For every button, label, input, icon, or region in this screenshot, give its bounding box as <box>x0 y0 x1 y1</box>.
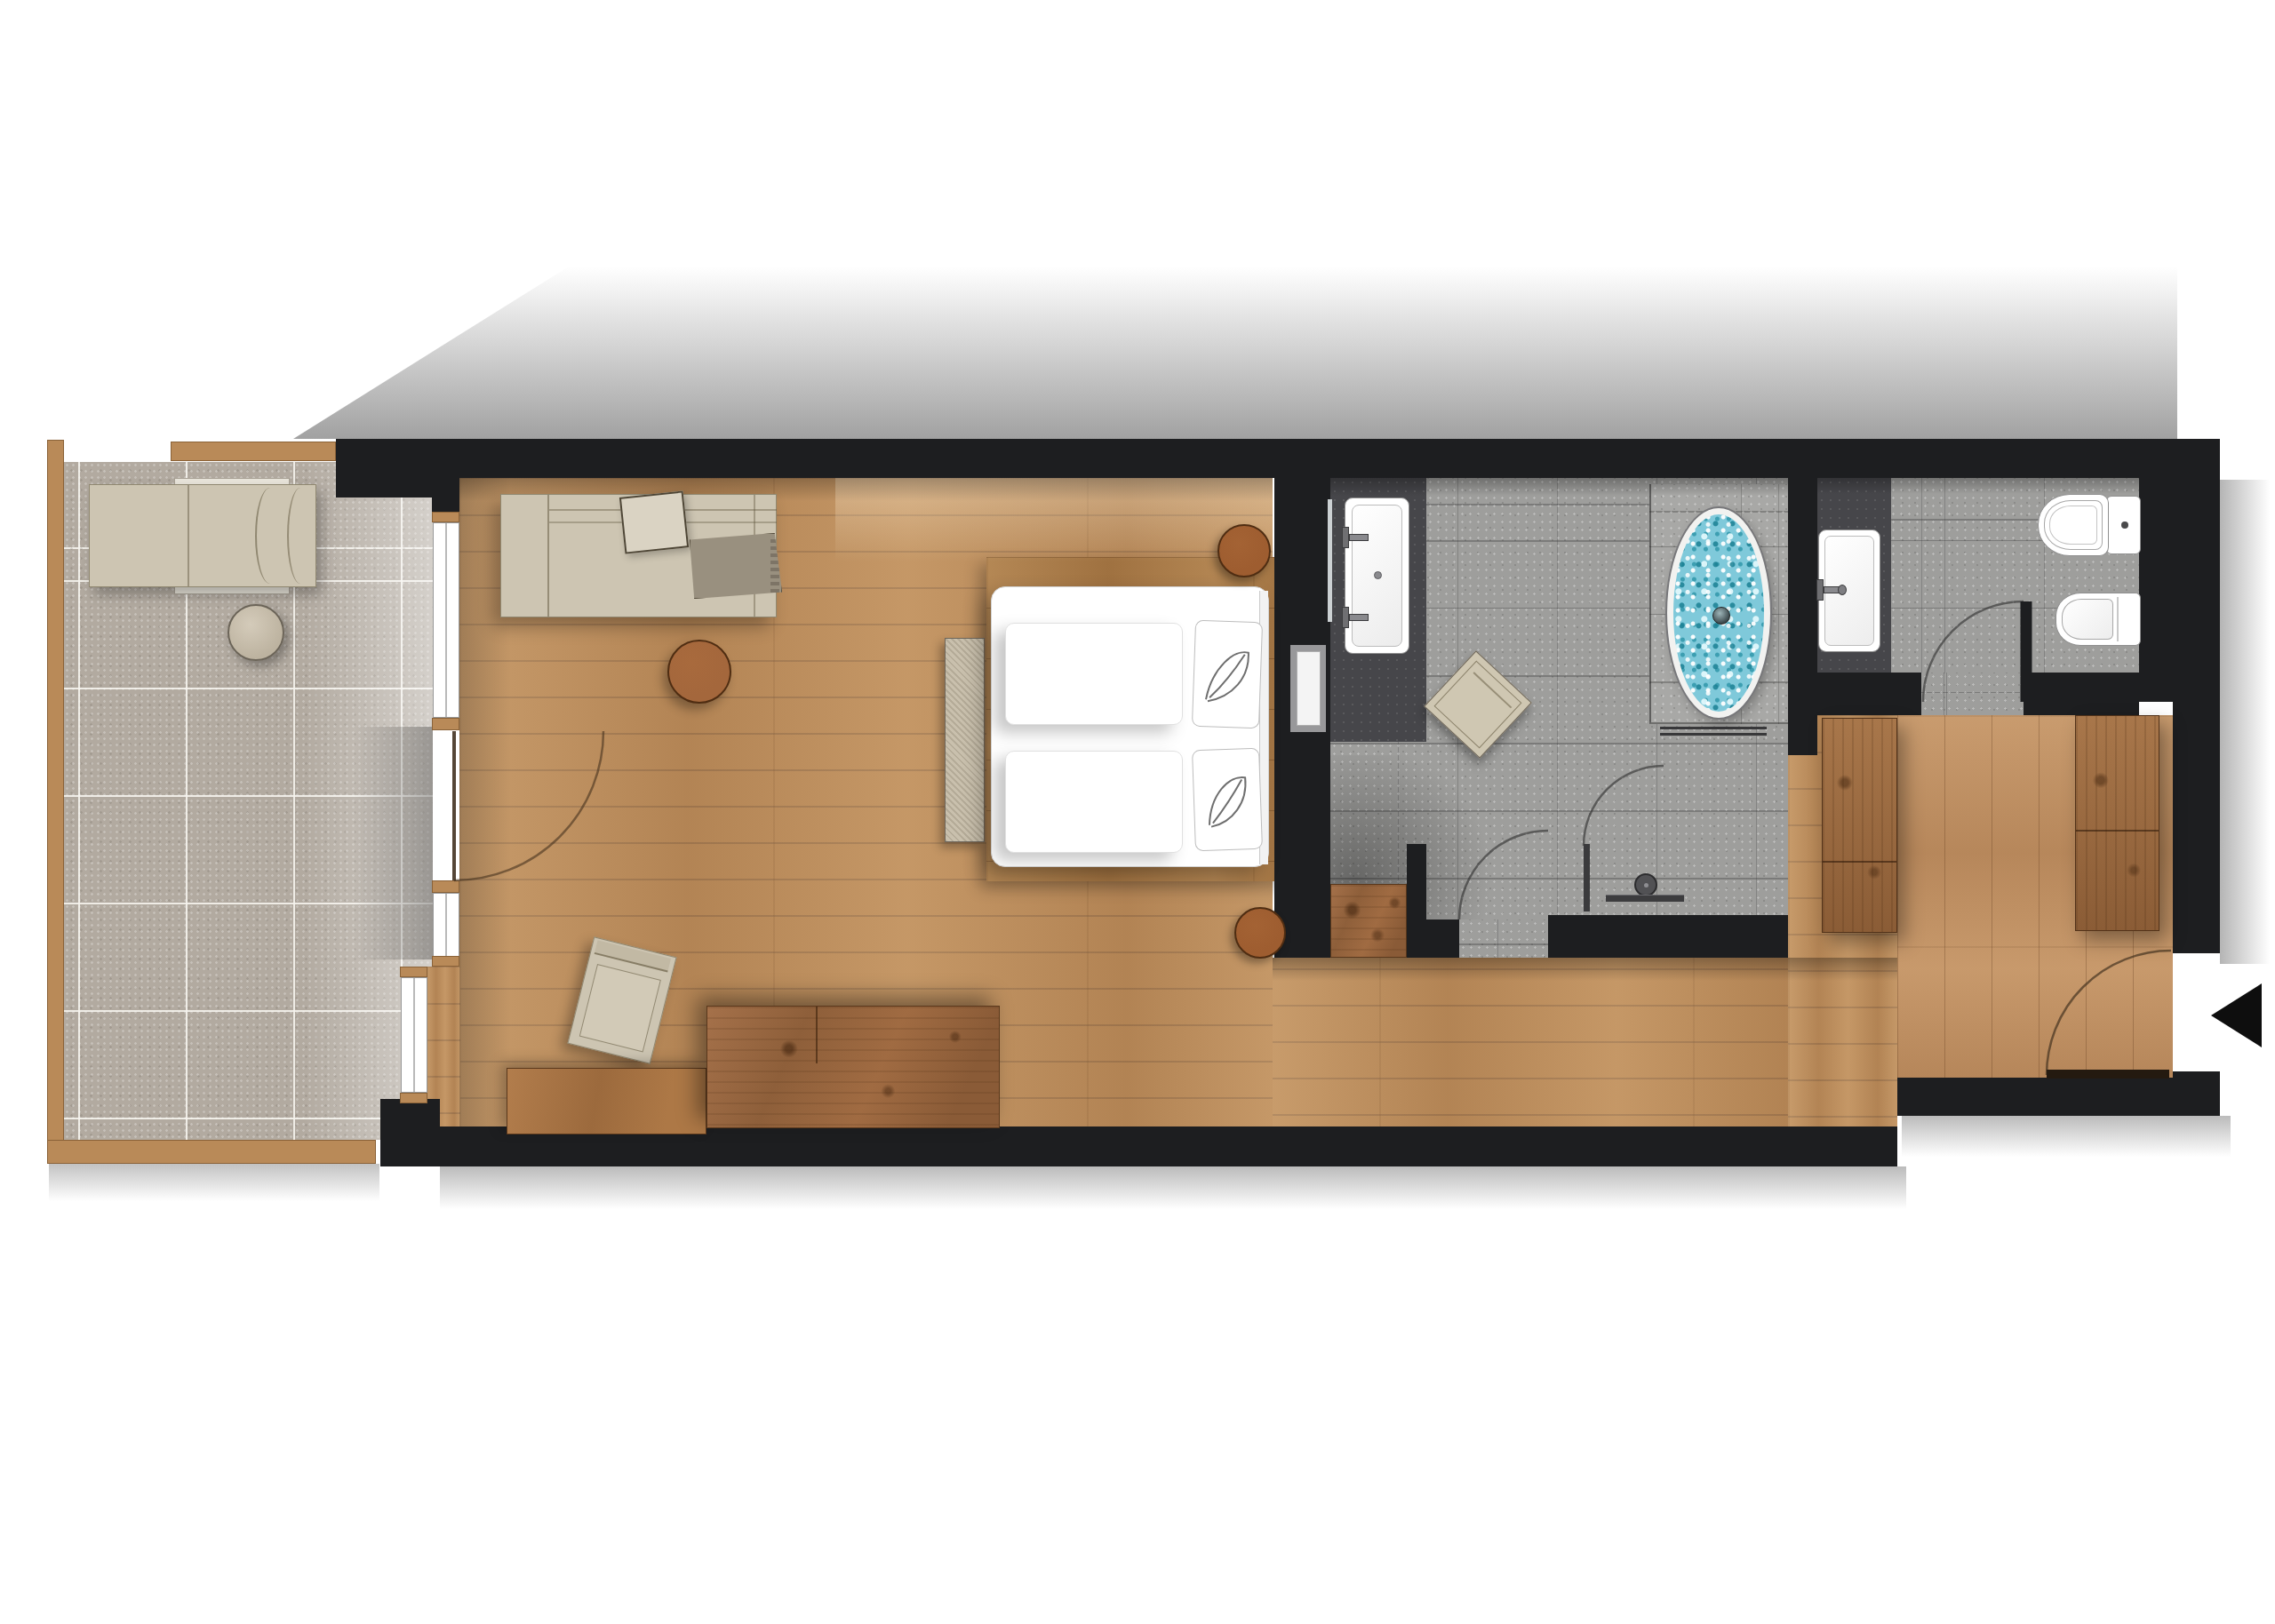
lounger-frame-bottom <box>174 586 290 594</box>
window-cap <box>432 880 459 893</box>
bathroom-door-threshold <box>1459 919 1548 958</box>
faucet-handle <box>1342 527 1349 548</box>
window-cap <box>432 512 459 522</box>
wardrobe-seam <box>1823 861 1896 863</box>
double-bed <box>991 586 1269 867</box>
shadow-top <box>293 267 2177 439</box>
bidet-divider <box>2117 597 2119 641</box>
terrace-window-lower <box>401 977 427 1093</box>
towel-rail <box>1660 727 1767 736</box>
oval-bathtub <box>1667 508 1770 718</box>
faucet-bottom <box>1338 607 1369 628</box>
wall-bottom-left-corner <box>380 1099 440 1166</box>
toilet-cistern <box>2106 496 2141 554</box>
wall-right <box>2173 702 2220 953</box>
shower-partition <box>1584 844 1590 912</box>
sliding-door <box>1297 651 1321 726</box>
hallway-top-shadow <box>1273 958 1897 981</box>
duvet-top <box>1005 623 1183 725</box>
bidet <box>2055 593 2141 646</box>
bed-bench <box>945 638 985 842</box>
wardrobe-seam <box>2076 830 2159 832</box>
wall-bath-bottom-right <box>1548 915 1788 958</box>
bedside-table-top <box>1217 524 1271 577</box>
toilet-bowl-ring2 <box>2049 506 2097 545</box>
shower-head <box>1634 873 1657 896</box>
vanity-mirror <box>1328 499 1332 622</box>
window-cap <box>432 718 459 730</box>
wall-left-stub <box>432 478 459 513</box>
pillow-leaf-sketch <box>1193 749 1264 853</box>
window-cap <box>400 1093 427 1103</box>
wall-right-wc <box>2139 469 2220 702</box>
wall-wc-bottom-left <box>1817 673 1921 715</box>
wall-bath-niche-right <box>1407 844 1426 958</box>
terrace-window-upper <box>433 522 459 718</box>
shadow-bottom-main <box>440 1166 1906 1209</box>
tub-drain-filler <box>1712 607 1730 625</box>
faucet-spout <box>1349 534 1369 541</box>
sun-lounger <box>89 484 316 587</box>
terrace-door-shadow <box>354 727 433 959</box>
wall-bath-wc-divider <box>1788 478 1817 755</box>
toilet-bowl <box>2038 494 2109 556</box>
bedside-table-bottom <box>1234 907 1286 959</box>
faucet-handle <box>1342 607 1349 628</box>
basin-drain <box>1374 571 1382 579</box>
shadow-bottom-entry <box>1902 1116 2231 1157</box>
hall-cabinet <box>1330 884 1407 958</box>
toilet <box>2038 494 2141 556</box>
wardrobe-right <box>2075 715 2159 931</box>
terrace-wood-edge-top <box>171 442 336 461</box>
window-cap <box>400 967 427 977</box>
sofa-seam-left <box>547 495 549 617</box>
sofa-cushion <box>619 490 689 553</box>
throw-blanket <box>690 533 782 599</box>
window-cap <box>432 956 459 967</box>
terrace-wood-edge-left <box>47 440 64 1164</box>
faucet-handle <box>1816 579 1824 601</box>
shower-channel <box>1606 895 1684 902</box>
entrance-arrow <box>2211 983 2262 1047</box>
floor-plan <box>0 0 2275 1624</box>
faucet-top <box>1338 527 1369 548</box>
dresser <box>706 1006 1000 1128</box>
flush-button <box>2121 521 2128 529</box>
wc-faucet <box>1813 579 1843 601</box>
pillow-bottom <box>1192 748 1263 852</box>
wall-entry-bottom <box>1897 1078 2186 1116</box>
armchair-seat <box>579 964 661 1052</box>
shower-head-dot <box>1644 883 1648 888</box>
terrace-side-table <box>227 604 284 661</box>
shadow-right <box>2220 480 2270 964</box>
wc-door-threshold <box>1921 673 2024 715</box>
coffee-table <box>667 640 731 704</box>
low-sideboard <box>507 1068 706 1134</box>
terrace-wood-edge-bottom <box>47 1140 376 1164</box>
faucet-spout <box>1349 614 1369 621</box>
pillow-leaf-sketch <box>1193 621 1264 730</box>
bidet-ring <box>2062 599 2113 640</box>
dresser-seam <box>816 1007 818 1063</box>
wardrobe-left <box>1822 718 1897 933</box>
pillow-top <box>1192 620 1263 729</box>
wall-bath-bottom-left <box>1426 919 1459 958</box>
duvet-bottom <box>1005 751 1183 853</box>
shadow-terrace-bottom <box>49 1164 379 1201</box>
faucet-knob <box>1838 585 1847 595</box>
bathroom-top-shadow <box>1330 478 1788 496</box>
lounger-seam <box>188 485 189 586</box>
wall-wc-bottom-right <box>2024 673 2139 715</box>
lounger-backrest-line <box>255 488 285 584</box>
double-washbasin <box>1345 498 1409 654</box>
wc-top-shadow <box>1817 478 2139 494</box>
lounger-backrest-line <box>287 488 314 584</box>
